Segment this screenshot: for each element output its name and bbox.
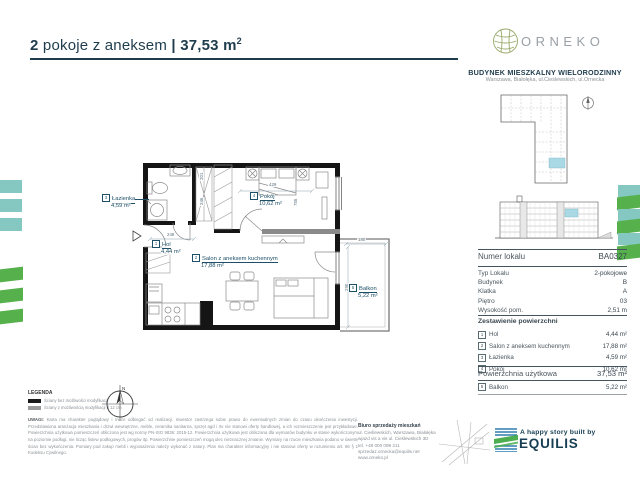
office-website-link[interactable]: www.orneko.pl bbox=[358, 455, 436, 461]
detail-value: 2,51 m bbox=[607, 307, 627, 314]
legend-title: LEGENDA bbox=[28, 390, 52, 396]
unit-details: Typ Lokalu2-pokojoweBudynekBKlatkaAPiętr… bbox=[478, 269, 627, 315]
balcony-row: 5 Balkon 5,22 m² bbox=[478, 383, 627, 391]
building-title: BUDYNEK MIESZKALNY WIELORODZINNY bbox=[462, 68, 628, 77]
equilis-logo-icon bbox=[494, 427, 518, 452]
unit-number-label: Numer lokalu bbox=[478, 252, 525, 261]
detail-value: 2-pokojowe bbox=[594, 270, 627, 277]
plan-modifiable-wall bbox=[262, 229, 340, 234]
detail-row: Wysokość pom.2,51 m bbox=[478, 306, 627, 315]
table-rule bbox=[478, 380, 627, 381]
unit-number-row: Numer lokalu BA0327 bbox=[478, 252, 627, 261]
area-number-box: 1 bbox=[478, 331, 486, 339]
unit-floor-highlight bbox=[565, 209, 578, 217]
building-elevation bbox=[493, 192, 615, 242]
bedroom-furniture bbox=[246, 167, 328, 219]
location-map-sketch bbox=[437, 418, 492, 466]
area-row: 2Salon z aneksem kuchennym17,88 m² bbox=[478, 341, 627, 353]
office-address-line: wjazd vis a vis ul. Cieślewskich 3D bbox=[358, 436, 436, 442]
area-value: 17,88 m² bbox=[603, 343, 627, 350]
table-rule bbox=[478, 266, 627, 267]
title-text: pokoje z aneksem bbox=[43, 37, 167, 54]
detail-row: BudynekB bbox=[478, 278, 627, 287]
balcony-outline bbox=[340, 239, 389, 331]
legend-item: Ściany bez możliwości modyfikacji bbox=[28, 398, 108, 403]
plan-walls bbox=[143, 163, 340, 330]
plan-wardrobes bbox=[146, 165, 232, 273]
detail-label: Typ Lokalu bbox=[478, 270, 509, 277]
table-rule bbox=[478, 315, 627, 316]
detail-label: Klatka bbox=[478, 288, 496, 295]
disclaimer-text: UWAGI: Karta ma charakter poglądowy i mo… bbox=[28, 417, 358, 457]
area-label: Hol bbox=[489, 331, 606, 338]
unit-number-value: BA0327 bbox=[599, 252, 627, 261]
balcony-number-box: 5 bbox=[478, 383, 486, 391]
detail-row: Piętro03 bbox=[478, 297, 627, 306]
title-area: 37,53 m bbox=[180, 37, 236, 54]
title-rule bbox=[30, 58, 458, 60]
title-separator: | bbox=[171, 37, 175, 54]
svg-text:N: N bbox=[122, 386, 125, 391]
unit-highlight bbox=[549, 158, 565, 168]
teal-stripe bbox=[0, 218, 22, 231]
balcony-value: 5,22 m² bbox=[606, 384, 627, 391]
disclaimer-label: UWAGI: bbox=[28, 417, 44, 422]
total-area-row: Powierzchnia użytkowa 37,53 m² bbox=[478, 369, 627, 378]
table-rule bbox=[478, 366, 627, 367]
area-number-box: 3 bbox=[478, 354, 486, 362]
green-stripe bbox=[0, 309, 23, 325]
detail-value: B bbox=[623, 279, 627, 286]
equilis-tagline: A happy story built by bbox=[520, 429, 596, 436]
detail-value: 03 bbox=[620, 298, 627, 305]
page-title: 2 pokoje z aneksem | 37,53 m2 bbox=[30, 36, 242, 54]
area-label: Salon z aneksem kuchennym bbox=[489, 343, 603, 350]
teal-stripe bbox=[0, 199, 22, 212]
dimension-lines bbox=[148, 189, 388, 329]
plan-doors bbox=[144, 209, 335, 272]
room-count: 2 bbox=[30, 37, 39, 54]
building-subtitle: Warszawa, Białołęka, ul.Cieślewskich, ul… bbox=[462, 77, 628, 83]
detail-label: Budynek bbox=[478, 279, 503, 286]
kitchen-fixtures bbox=[146, 284, 200, 325]
entrance-arrow-icon bbox=[133, 231, 141, 241]
legend-swatch-modifiable-wall bbox=[28, 406, 41, 410]
legend-swatch-solid-wall bbox=[28, 399, 41, 403]
green-stripe bbox=[0, 288, 23, 304]
teal-stripe bbox=[0, 180, 22, 193]
legend-item-label: Ściany bez możliwości modyfikacji bbox=[44, 398, 108, 403]
areas-section-title: Zestawienie powierzchni bbox=[478, 318, 558, 325]
area-number-box: 2 bbox=[478, 342, 486, 350]
table-rule bbox=[478, 249, 627, 250]
compass-icon: N bbox=[101, 383, 139, 421]
orneko-logo-icon bbox=[492, 27, 520, 55]
total-area-label: Powierzchnia użytkowa bbox=[478, 369, 557, 378]
area-label: Łazienka bbox=[489, 354, 606, 361]
detail-label: Piętro bbox=[478, 298, 495, 305]
equilis-logo-text: EQUILIS bbox=[519, 436, 579, 451]
detail-label: Wysokość pom. bbox=[478, 307, 523, 314]
apartment-card-page: 2 pokoje z aneksem | 37,53 m2 ORNEKO BUD… bbox=[0, 0, 640, 480]
area-row: 3Łazienka4,59 m² bbox=[478, 352, 627, 364]
green-stripe bbox=[0, 267, 23, 283]
sales-office-title: Biuro sprzedaży mieszkań bbox=[358, 423, 421, 429]
area-value: 4,44 m² bbox=[606, 331, 627, 338]
area-row: 1Hol4,44 m² bbox=[478, 329, 627, 341]
sales-office-address: ul. Cieślewskich, Warszawa, Białołęka wj… bbox=[358, 430, 436, 461]
total-area-value: 37,53 m² bbox=[597, 369, 627, 378]
living-furniture bbox=[226, 236, 328, 318]
detail-row: Typ Lokalu2-pokojowe bbox=[478, 269, 627, 278]
detail-value: A bbox=[623, 288, 627, 295]
floor-plan bbox=[55, 135, 400, 390]
site-plan-thumbnail bbox=[495, 88, 605, 188]
title-area-sup: 2 bbox=[237, 36, 242, 46]
orneko-logo-text: ORNEKO bbox=[521, 34, 604, 49]
mini-compass-icon bbox=[583, 96, 594, 110]
bathroom-fixtures bbox=[147, 165, 190, 220]
area-value: 4,59 m² bbox=[606, 354, 627, 361]
table-rule bbox=[478, 394, 627, 395]
balcony-label: Balkon bbox=[489, 384, 508, 391]
detail-row: KlatkaA bbox=[478, 287, 627, 296]
